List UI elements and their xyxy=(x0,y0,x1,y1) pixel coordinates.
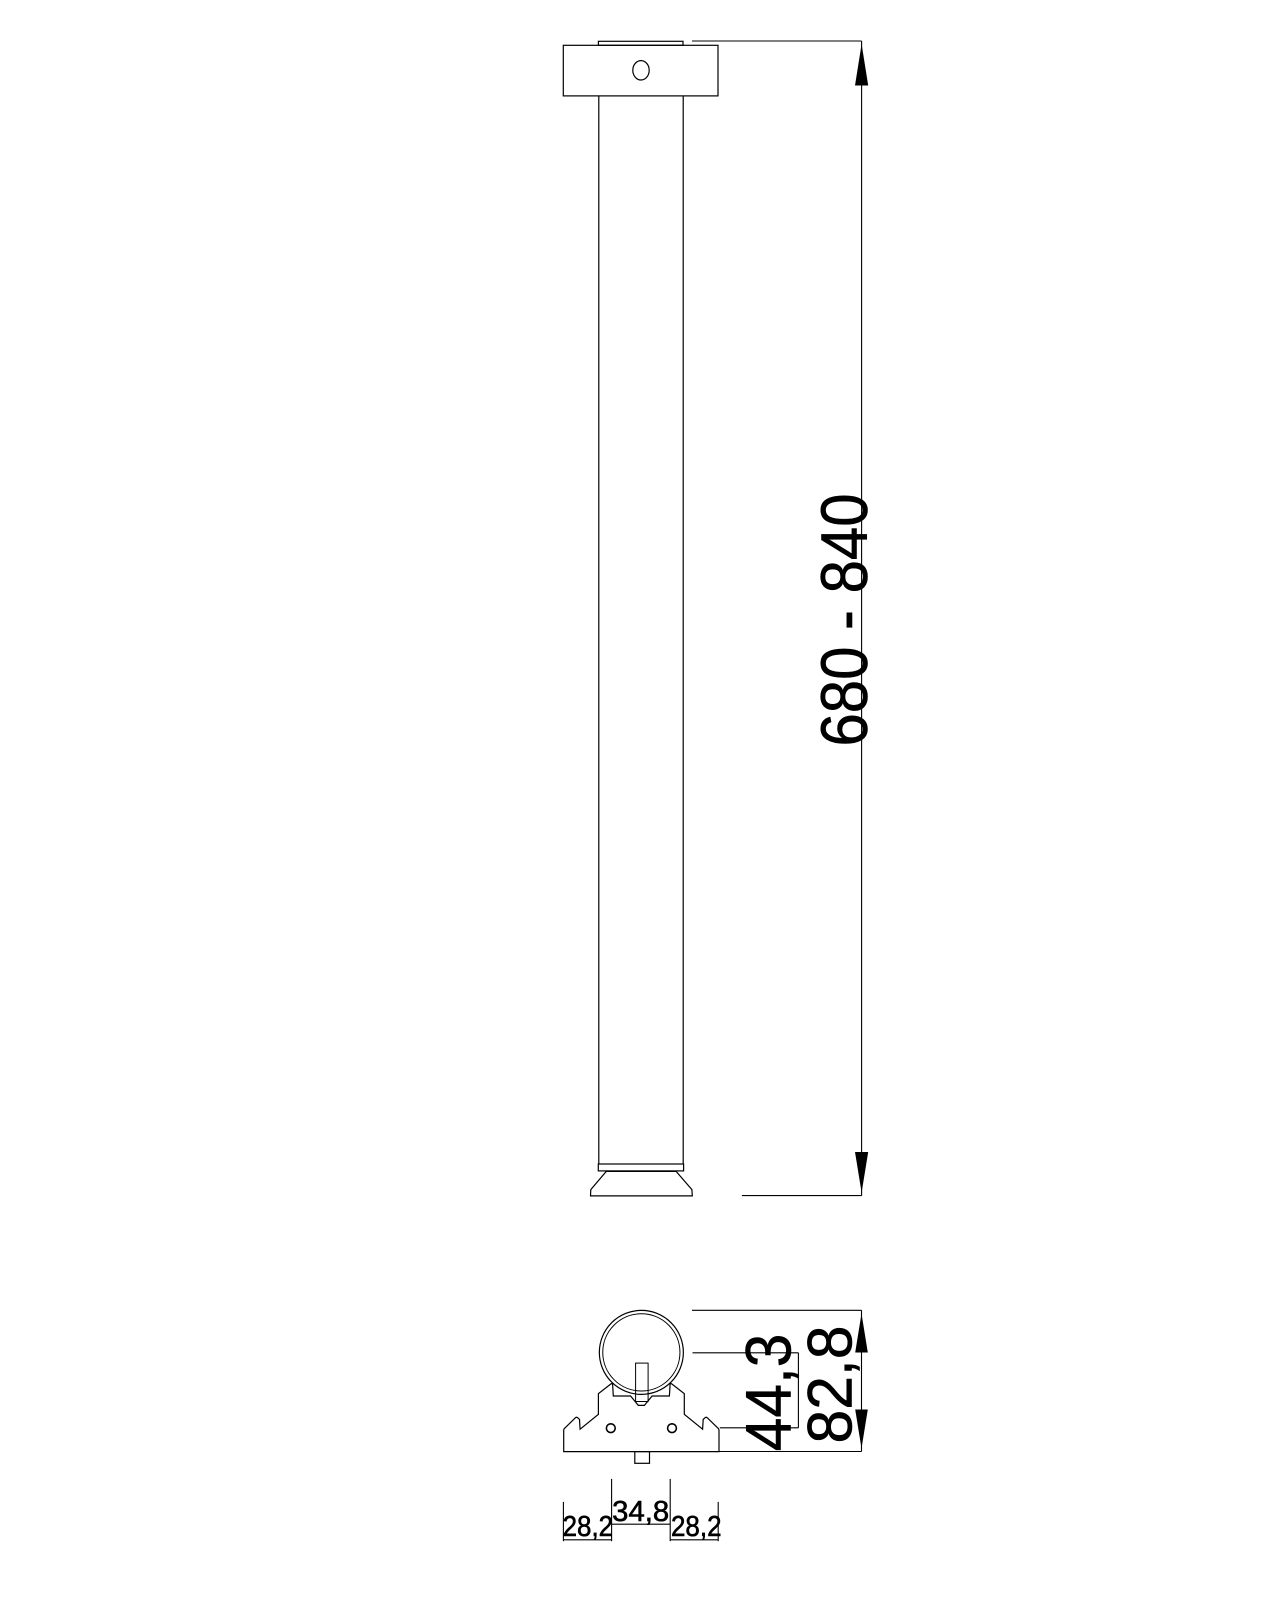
svg-text:680 - 840: 680 - 840 xyxy=(807,494,881,747)
svg-text:44,3: 44,3 xyxy=(732,1334,804,1452)
svg-text:28,2: 28,2 xyxy=(671,1511,722,1543)
svg-text:82,8: 82,8 xyxy=(796,1326,866,1444)
svg-text:28,2: 28,2 xyxy=(563,1511,614,1543)
svg-text:34,8: 34,8 xyxy=(612,1496,669,1528)
